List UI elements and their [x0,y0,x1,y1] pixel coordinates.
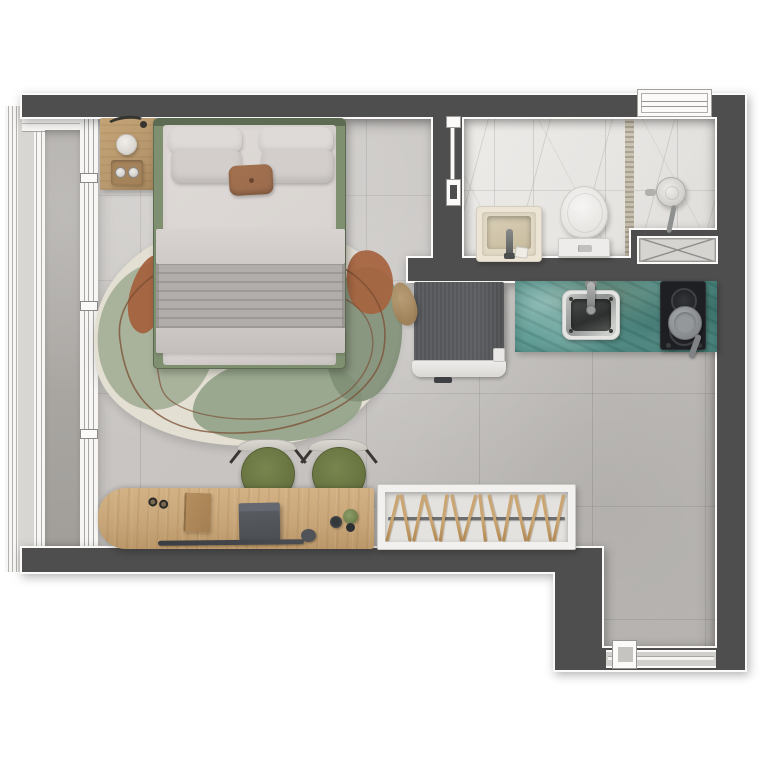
washbasin [476,206,542,262]
floor-plan [0,0,768,768]
small-dish [346,523,355,532]
shelf-ruler [158,539,304,546]
folder [183,493,211,533]
table-lamp-head [140,121,147,128]
glasses-lens [158,499,169,510]
accent-pillow [228,164,274,196]
bathroom-sliding-door-leaf [450,127,455,180]
shower-valve [645,189,656,196]
window-glass-lines [641,101,708,107]
blanket-bottom [156,328,345,353]
service-shaft [637,236,718,264]
bathroom-door-jamb-bottom [446,179,461,206]
double-bed [153,118,346,369]
desk [98,488,374,549]
toilet [558,186,610,260]
nightstand [100,118,157,190]
cup [330,516,342,528]
shaft-cross-lines [639,238,716,262]
shaft-cross [639,238,716,262]
appliance-handle [434,377,452,383]
hanger-rail [388,517,565,520]
faucet-handle [504,253,515,259]
toilet-tank [558,238,610,258]
vase [116,134,137,155]
pan-inner [674,312,696,334]
shower-head [656,177,686,207]
sink-corner-dot [569,329,573,333]
blanket-textured [156,264,345,328]
sink-corner-dot [569,297,573,301]
built-in-appliance [414,282,504,362]
tray [111,160,143,185]
shower-head-inner [665,186,679,200]
glasses [147,497,173,513]
sink-corner-dot [609,329,613,333]
laptop [239,503,281,541]
plant-pot [343,509,358,524]
soap-dish [514,246,528,259]
appliance-door [412,360,506,377]
blanket-top-fold [156,229,345,264]
kitchen-faucet-spout [586,305,596,315]
mouse [301,529,316,542]
sink-corner-dot [609,297,613,301]
rack-interior [385,492,568,542]
appliance-hinge [493,348,505,362]
bathroom-window [637,89,712,117]
jamb-notch [450,185,457,199]
door-leaf-notch [618,647,633,662]
open-hanger-rack [377,484,576,550]
flush-button [578,245,592,252]
cooktop-knob [666,343,671,348]
glasses-lens [148,497,159,508]
laptop-hinge [239,503,280,512]
pillow-button [249,178,254,183]
tray-knob [128,167,139,178]
tray-knob [115,167,126,178]
entrance-door-leaf [612,640,637,669]
toilet-seat-line [567,193,603,233]
